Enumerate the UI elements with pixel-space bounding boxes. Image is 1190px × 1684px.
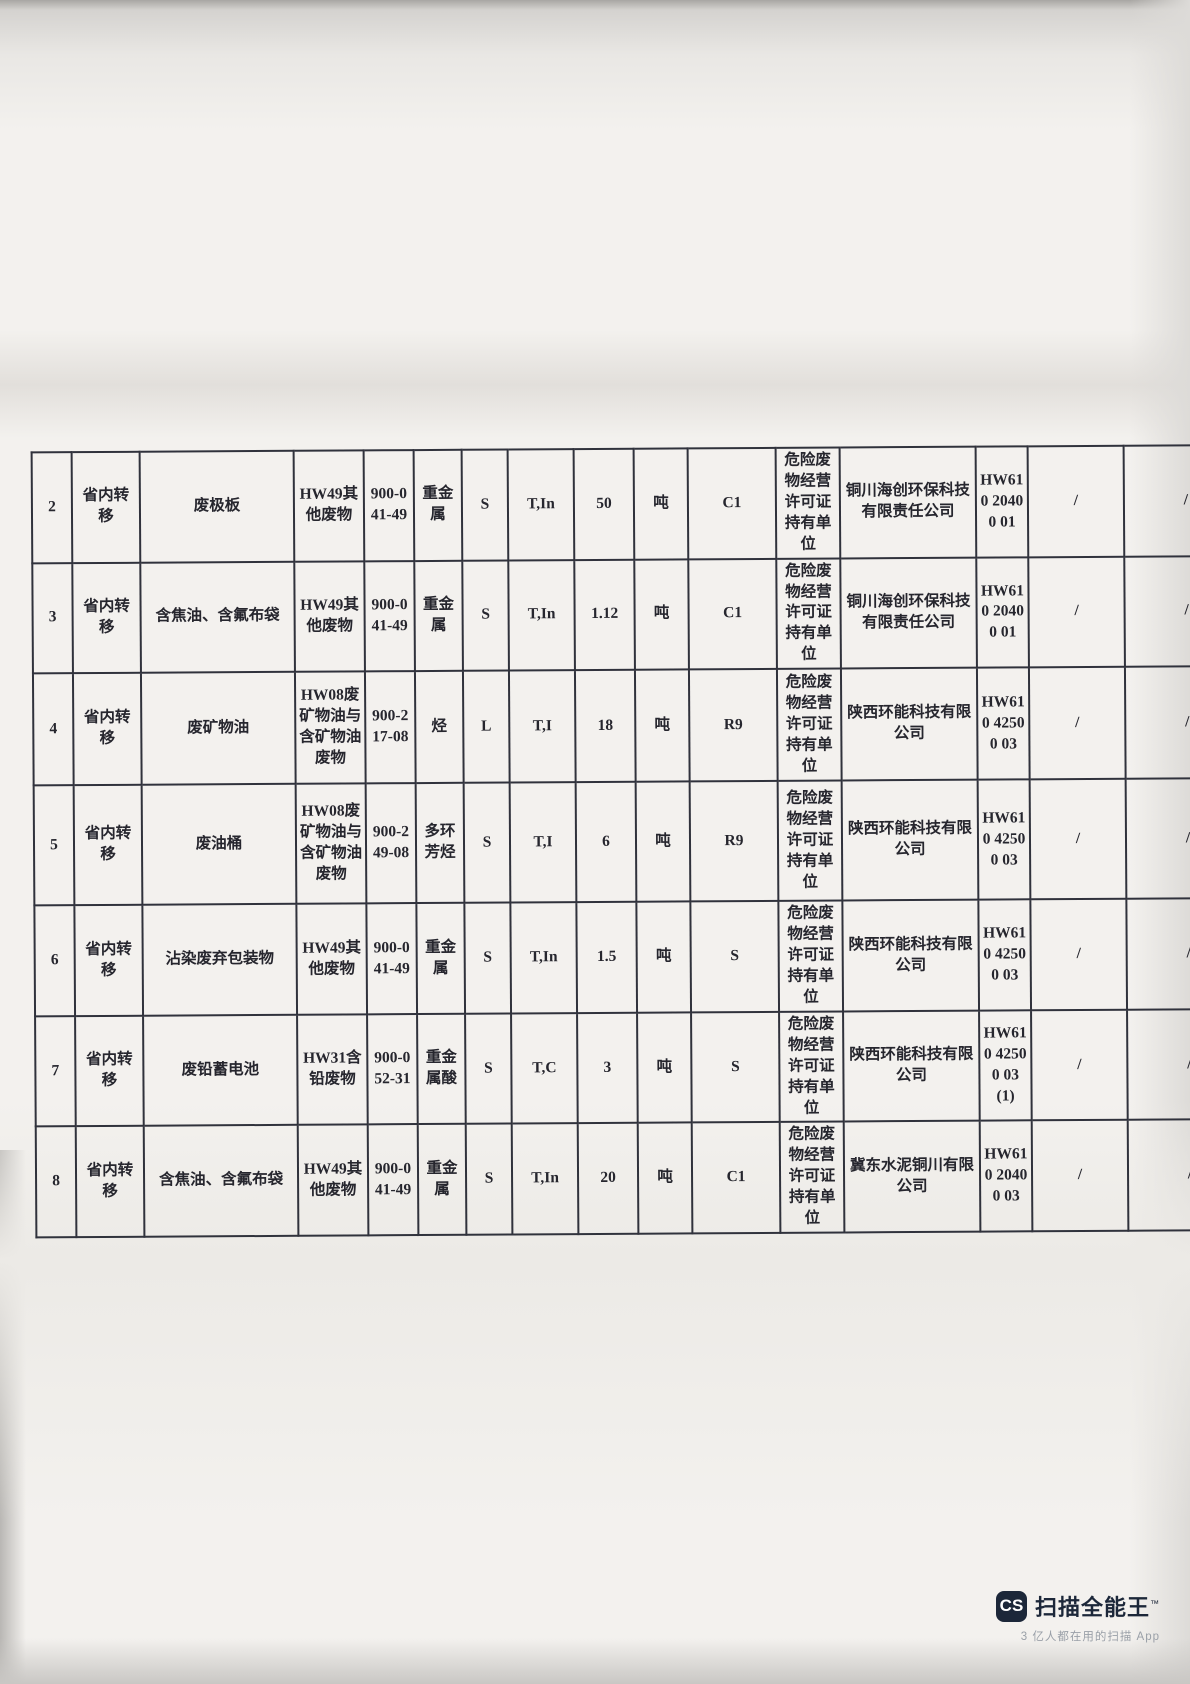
cell-permit-no: HW610 42500 03 (978, 900, 1031, 1011)
cell-unit: 吨 (634, 448, 689, 559)
table-row: 6省内转移沾染废弃包装物HW49其他废物900-041-49重金属ST,In1.… (34, 898, 1190, 1016)
table-row: 4省内转移废矿物油HW08废矿物油与含矿物油废物900-217-08烃LT,I1… (33, 666, 1190, 785)
cell-no: 2 (32, 452, 73, 563)
cell-main-component: 重金属 (418, 1124, 467, 1235)
cell-permit-no: HW610 20400 01 (976, 557, 1029, 668)
cell-transfer-type: 省内转移 (73, 673, 142, 785)
cell-unit: 吨 (638, 1123, 693, 1234)
cell-holder-label: 危险废物经营许可证持有单位 (776, 447, 841, 558)
cell-holder-company: 陕西环能科技有限公司 (842, 780, 979, 901)
watermark-brand-text: 扫描全能王 (1035, 1595, 1150, 1620)
hazardous-waste-transfer-table: 2省内转移废极板HW49其他废物900-041-49重金属ST,In50吨C1危… (31, 444, 1190, 1238)
cell-disposal-code: R9 (690, 781, 779, 902)
cell-waste-code: 900-041-49 (364, 561, 415, 672)
cell-note1: / (1030, 899, 1127, 1010)
cell-hazard-property: T,I (509, 670, 576, 782)
paper-shadow-top (0, 0, 1190, 130)
cell-hazard-property: T,I (510, 782, 577, 902)
cell-holder-company: 陕西环能科技有限公司 (841, 668, 978, 781)
cell-disposal-code: R9 (689, 669, 778, 782)
cell-no: 6 (34, 905, 75, 1016)
cell-quantity: 1.12 (574, 559, 635, 670)
cell-note2: / (1125, 666, 1190, 779)
cell-note1: / (1030, 779, 1127, 900)
cell-physical-state: S (465, 1013, 512, 1124)
cell-permit-no: HW610 42500 03 (1) (979, 1010, 1032, 1121)
cell-holder-company: 铜川海创环保科技有限责任公司 (840, 557, 977, 668)
cell-note2: / (1124, 556, 1190, 667)
cell-unit: 吨 (636, 902, 691, 1013)
cell-unit: 吨 (637, 1012, 692, 1123)
cell-waste-name: 废极板 (140, 451, 295, 563)
cell-no: 4 (33, 673, 74, 785)
cell-note1: / (1031, 1010, 1128, 1121)
cell-transfer-type: 省内转移 (72, 562, 141, 673)
cell-transfer-type: 省内转移 (74, 905, 143, 1016)
table-row: 8省内转移含焦油、含氟布袋HW49其他废物900-041-49重金属ST,In2… (36, 1119, 1190, 1237)
cell-note2: / (1126, 778, 1190, 899)
cell-holder-label: 危险废物经营许可证持有单位 (777, 669, 842, 781)
cell-waste-name: 沾染废弃包装物 (142, 904, 297, 1016)
cell-hazard-property: T,In (510, 902, 577, 1013)
cell-holder-label: 危险废物经营许可证持有单位 (780, 1122, 845, 1233)
cell-permit-no: HW610 20400 01 (976, 446, 1029, 557)
cell-waste-name: 废铅蓄电池 (143, 1015, 298, 1127)
cell-permit-no: HW610 42500 03 (977, 668, 1030, 780)
cell-physical-state: S (464, 783, 511, 903)
cell-waste-category: HW31含铅废物 (297, 1014, 368, 1125)
cell-waste-code: 900-217-08 (365, 671, 416, 783)
cell-waste-code: 900-041-49 (366, 903, 417, 1014)
cell-unit: 吨 (634, 559, 689, 670)
cell-waste-name: 废油桶 (142, 784, 297, 905)
cell-disposal-code: S (690, 901, 779, 1012)
cell-transfer-type: 省内转移 (74, 785, 143, 905)
cell-holder-company: 陕西环能科技有限公司 (843, 1010, 980, 1121)
cell-holder-label: 危险废物经营许可证持有单位 (778, 781, 843, 901)
paper-shadow-left (0, 1150, 26, 1684)
cell-transfer-type: 省内转移 (76, 1126, 145, 1237)
table-row: 3省内转移含焦油、含氟布袋HW49其他废物900-041-49重金属ST,In1… (32, 556, 1190, 674)
camscanner-watermark: CS 扫描全能王™ 3 亿人都在用的扫描 App (996, 1590, 1160, 1644)
cell-no: 7 (35, 1016, 76, 1127)
cell-quantity: 18 (575, 670, 636, 782)
watermark-brand-row: CS 扫描全能王™ (996, 1590, 1160, 1622)
cell-note2: / (1128, 1119, 1190, 1230)
cell-waste-code: 900-052-31 (367, 1014, 418, 1125)
cell-holder-company: 铜川海创环保科技有限责任公司 (840, 447, 977, 558)
cell-physical-state: S (466, 1124, 513, 1235)
camscanner-logo-icon: CS (996, 1591, 1027, 1622)
cell-physical-state: S (464, 903, 511, 1014)
cell-holder-label: 危险废物经营许可证持有单位 (776, 558, 841, 669)
cell-main-component: 重金属 (414, 450, 463, 561)
cell-permit-no: HW610 42500 03 (978, 780, 1031, 900)
cell-note1: / (1032, 1120, 1129, 1231)
cell-waste-category: HW08废矿物油与含矿物油废物 (296, 784, 367, 904)
cell-main-component: 重金属 (416, 903, 465, 1014)
cell-quantity: 50 (574, 449, 635, 560)
cell-note2: / (1127, 1009, 1190, 1120)
cell-holder-label: 危险废物经营许可证持有单位 (778, 901, 843, 1012)
cell-no: 8 (36, 1127, 77, 1238)
table-row: 7省内转移废铅蓄电池HW31含铅废物900-052-31重金属酸ST,C3吨S危… (35, 1009, 1190, 1127)
cell-waste-name: 含焦油、含氟布袋 (140, 561, 295, 673)
cell-main-component: 多环芳烃 (416, 783, 465, 903)
cell-waste-name: 含焦油、含氟布袋 (144, 1125, 299, 1237)
cell-waste-code: 900-041-49 (368, 1125, 419, 1236)
cell-disposal-code: S (691, 1012, 780, 1123)
cell-note1: / (1029, 667, 1126, 780)
cell-permit-no: HW610 20400 03 (980, 1121, 1033, 1232)
cell-quantity: 20 (578, 1123, 639, 1234)
table-row: 5省内转移废油桶HW08废矿物油与含矿物油废物900-249-08多环芳烃ST,… (34, 778, 1190, 905)
cell-no: 5 (34, 785, 75, 905)
cell-hazard-property: T,In (508, 560, 575, 671)
cell-disposal-code: C1 (688, 558, 777, 669)
cell-waste-category: HW49其他废物 (298, 1125, 369, 1236)
cell-no: 3 (32, 563, 73, 674)
cell-disposal-code: C1 (692, 1122, 781, 1233)
cell-physical-state: S (462, 560, 509, 671)
cell-waste-category: HW49其他废物 (296, 904, 367, 1015)
cell-waste-category: HW08废矿物油与含矿物油废物 (295, 672, 366, 784)
cell-note2: / (1124, 445, 1190, 556)
paper-crease (0, 330, 1190, 440)
scanned-table-region: 2省内转移废极板HW49其他废物900-041-49重金属ST,In50吨C1危… (31, 445, 1152, 1239)
cell-note1: / (1028, 446, 1125, 557)
cell-waste-name: 废矿物油 (141, 672, 296, 785)
cell-hazard-property: T,In (512, 1124, 579, 1235)
table-body: 2省内转移废极板HW49其他废物900-041-49重金属ST,In50吨C1危… (32, 445, 1190, 1237)
trademark-symbol: ™ (1150, 1599, 1160, 1609)
cell-main-component: 重金属酸 (417, 1014, 466, 1125)
cell-note2: / (1126, 898, 1190, 1009)
cell-unit: 吨 (635, 670, 690, 782)
cell-disposal-code: C1 (688, 448, 777, 559)
cell-hazard-property: T,In (508, 449, 575, 560)
cell-transfer-type: 省内转移 (72, 452, 141, 563)
cell-waste-code: 900-041-49 (364, 450, 415, 561)
cell-quantity: 1.5 (576, 902, 637, 1013)
cell-holder-company: 冀东水泥铜川有限公司 (844, 1121, 981, 1232)
cell-unit: 吨 (636, 782, 691, 902)
cell-physical-state: L (463, 671, 510, 783)
cell-hazard-property: T,C (511, 1013, 578, 1124)
cell-note1: / (1028, 556, 1125, 667)
watermark-brand: 扫描全能王™ (1035, 1590, 1160, 1622)
cell-quantity: 6 (576, 782, 637, 902)
cell-waste-code: 900-249-08 (366, 783, 417, 903)
cell-waste-category: HW49其他废物 (294, 450, 365, 561)
cell-holder-company: 陕西环能科技有限公司 (842, 900, 979, 1011)
cell-quantity: 3 (577, 1013, 638, 1124)
table-row: 2省内转移废极板HW49其他废物900-041-49重金属ST,In50吨C1危… (32, 445, 1190, 563)
cell-physical-state: S (462, 450, 509, 561)
paper-shadow-bottom (0, 1638, 1190, 1684)
cell-waste-category: HW49其他废物 (294, 561, 365, 672)
cell-holder-label: 危险废物经营许可证持有单位 (779, 1011, 844, 1122)
cell-main-component: 烃 (415, 671, 464, 783)
watermark-tagline: 3 亿人都在用的扫描 App (1021, 1628, 1160, 1644)
cell-transfer-type: 省内转移 (75, 1016, 144, 1127)
cell-main-component: 重金属 (414, 560, 463, 671)
